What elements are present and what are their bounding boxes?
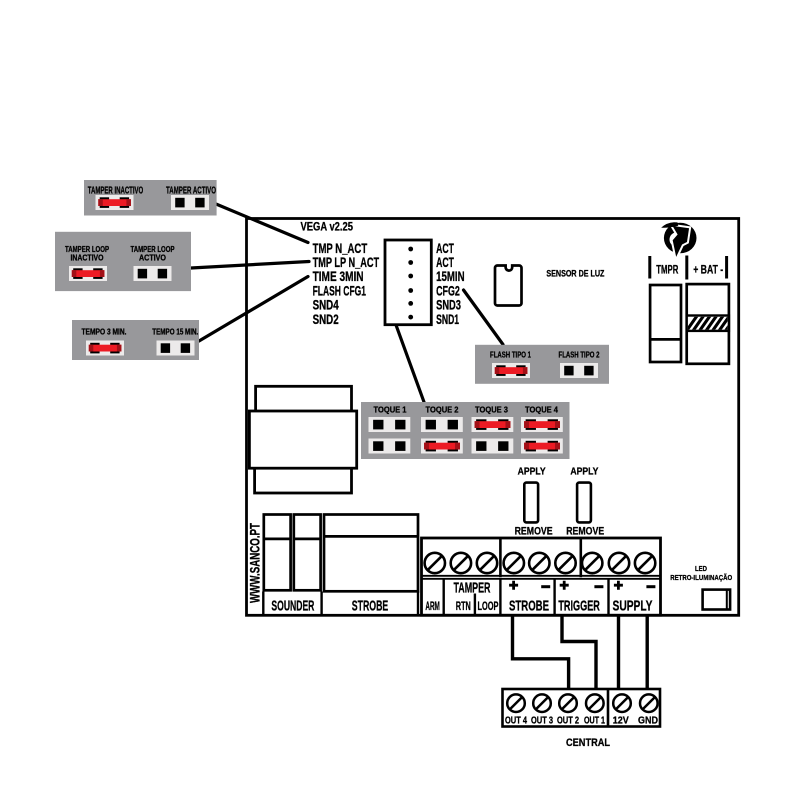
svg-text:TEMPO 15 MIN.: TEMPO 15 MIN. (152, 328, 198, 337)
svg-text:STROBE: STROBE (509, 597, 549, 614)
svg-text:RTN: RTN (456, 599, 471, 613)
svg-text:TAMPER INACTIVO: TAMPER INACTIVO (88, 184, 144, 196)
svg-text:LED: LED (695, 564, 707, 573)
svg-text:SUPPLY: SUPPLY (613, 597, 653, 614)
svg-text:FLASH CFG1: FLASH CFG1 (313, 283, 367, 298)
svg-text:INACTIVO: INACTIVO (71, 253, 104, 262)
svg-text:WWW.SANCO.PT: WWW.SANCO.PT (246, 523, 262, 603)
svg-text:OUT 2: OUT 2 (557, 715, 579, 726)
svg-text:FLASH TIPO 2: FLASH TIPO 2 (559, 350, 600, 359)
svg-text:TRIGGER: TRIGGER (558, 597, 600, 614)
svg-text:FLASH TIPO 1: FLASH TIPO 1 (490, 350, 531, 359)
svg-text:REMOVE: REMOVE (566, 526, 604, 538)
svg-text:TAMPER: TAMPER (454, 579, 491, 596)
svg-text:GND: GND (638, 715, 658, 726)
svg-text:ACTIVO: ACTIVO (139, 253, 166, 262)
svg-text:+ BAT -: + BAT - (693, 263, 723, 277)
svg-text:LOOP: LOOP (478, 599, 499, 613)
svg-text:RETRO-ILUMINAÇÃO: RETRO-ILUMINAÇÃO (670, 573, 732, 582)
svg-text:12V: 12V (613, 715, 629, 726)
svg-text:SND3: SND3 (436, 298, 461, 313)
svg-text:SND4: SND4 (313, 298, 339, 313)
svg-text:SND2: SND2 (313, 312, 339, 327)
svg-text:SOUNDER: SOUNDER (271, 597, 314, 614)
svg-text:CFG2: CFG2 (436, 283, 460, 298)
svg-text:OUT 4: OUT 4 (505, 715, 527, 726)
svg-text:TIME 3MIN: TIME 3MIN (313, 269, 364, 284)
svg-text:ACT: ACT (436, 255, 454, 270)
svg-text:CENTRAL: CENTRAL (566, 737, 610, 749)
svg-text:TAMPER ACTIVO: TAMPER ACTIVO (166, 184, 216, 196)
svg-text:STROBE: STROBE (352, 597, 389, 614)
svg-text:VEGA v2.25: VEGA v2.25 (301, 219, 354, 233)
svg-text:SENSOR DE LUZ: SENSOR DE LUZ (546, 268, 604, 278)
svg-text:TOQUE 3: TOQUE 3 (475, 404, 508, 414)
svg-text:APPLY: APPLY (570, 467, 598, 478)
svg-text:APPLY: APPLY (518, 467, 546, 478)
svg-text:ARM: ARM (425, 599, 440, 613)
svg-text:15MIN: 15MIN (436, 269, 465, 284)
svg-text:TMPR: TMPR (656, 263, 678, 277)
svg-text:OUT 1: OUT 1 (584, 715, 605, 726)
svg-text:TOQUE 2: TOQUE 2 (426, 404, 459, 414)
svg-text:OUT 3: OUT 3 (531, 715, 553, 726)
svg-text:TMP N_ACT: TMP N_ACT (313, 241, 368, 256)
svg-text:TOQUE 4: TOQUE 4 (525, 404, 558, 414)
svg-text:TMP LP N_ACT: TMP LP N_ACT (313, 255, 380, 270)
svg-text:ACT: ACT (436, 241, 454, 256)
svg-text:TOQUE 1: TOQUE 1 (374, 404, 407, 414)
svg-text:TEMPO 3 MIN.: TEMPO 3 MIN. (82, 328, 127, 337)
svg-text:SND1: SND1 (436, 312, 459, 327)
svg-text:REMOVE: REMOVE (515, 526, 553, 538)
